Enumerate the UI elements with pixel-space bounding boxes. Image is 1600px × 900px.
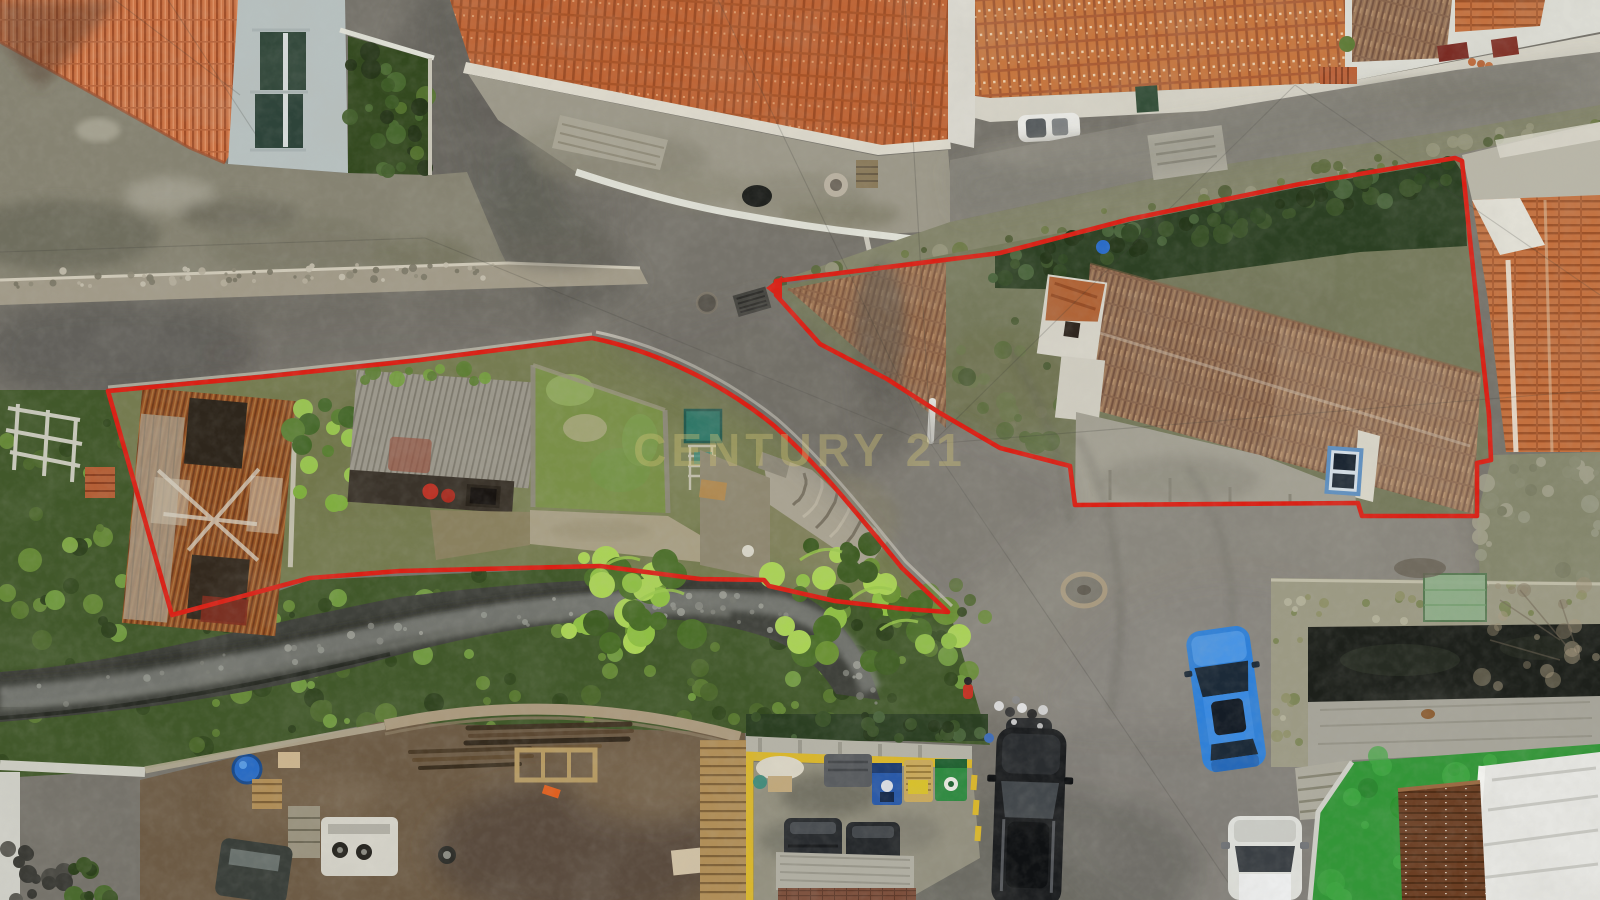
svg-text:CENTURY 21: CENTURY 21 [633,424,967,476]
